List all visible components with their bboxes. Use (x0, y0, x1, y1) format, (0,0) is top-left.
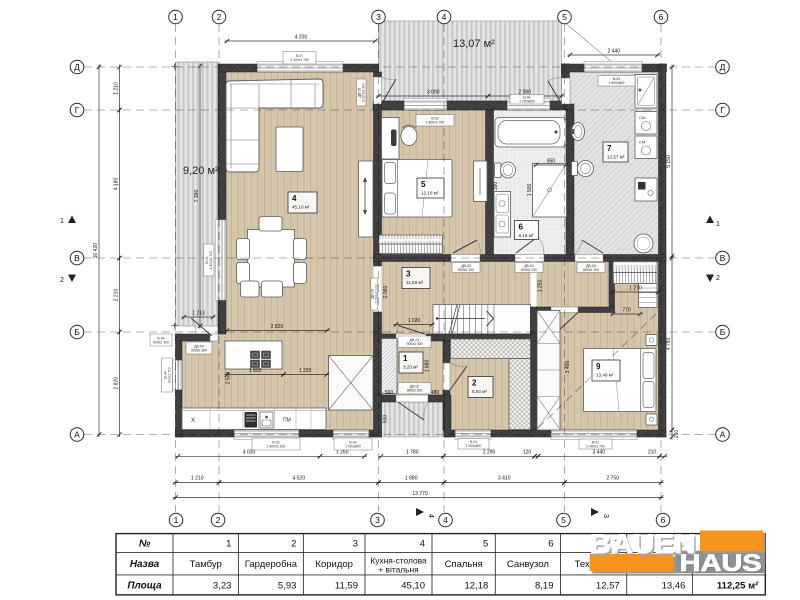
svg-text:Назва: Назва (130, 559, 160, 570)
svg-text:1 000х800: 1 000х800 (345, 444, 361, 448)
svg-text:1 780: 1 780 (406, 450, 419, 456)
svg-text:210: 210 (674, 430, 680, 439)
svg-text:2: 2 (716, 275, 720, 282)
svg-text:1 210: 1 210 (191, 476, 204, 482)
svg-text:5: 5 (421, 180, 426, 189)
svg-text:HAUS: HAUS (680, 550, 762, 577)
svg-text:390: 390 (493, 182, 499, 191)
svg-text:3: 3 (375, 515, 380, 525)
svg-text:2: 2 (60, 277, 64, 284)
svg-text:2: 2 (291, 539, 296, 550)
svg-text:45,10 м²: 45,10 м² (292, 205, 310, 210)
svg-text:1 000х800: 1 000х800 (466, 444, 482, 448)
svg-text:5: 5 (561, 515, 566, 525)
svg-text:4 030: 4 030 (243, 450, 256, 456)
svg-text:6: 6 (661, 515, 666, 525)
svg-text:Б: Б (720, 327, 726, 337)
svg-text:А: А (720, 430, 726, 440)
svg-text:1 250: 1 250 (538, 280, 544, 293)
svg-text:4 790: 4 790 (666, 338, 672, 351)
svg-text:4: 4 (427, 514, 434, 518)
svg-text:3 400: 3 400 (565, 361, 571, 374)
svg-text:7 390: 7 390 (194, 190, 200, 203)
svg-text:3,23 м²: 3,23 м² (403, 365, 418, 370)
svg-text:А: А (74, 430, 80, 440)
svg-text:3 410: 3 410 (498, 476, 511, 482)
svg-text:13,07 м²: 13,07 м² (453, 38, 495, 50)
svg-text:2: 2 (216, 515, 221, 525)
svg-text:11,59 м²: 11,59 м² (406, 280, 424, 285)
svg-text:4: 4 (420, 539, 425, 550)
svg-text:1 270: 1 270 (629, 286, 642, 292)
svg-text:1: 1 (173, 12, 178, 22)
svg-text:1: 1 (60, 218, 64, 225)
svg-text:1 600: 1 600 (249, 368, 262, 374)
svg-text:Спальня: Спальня (445, 559, 483, 570)
svg-text:СШ: СШ (639, 115, 646, 120)
svg-text:6: 6 (519, 223, 524, 232)
svg-text:Гардеробна: Гардеробна (245, 559, 298, 570)
svg-text:Тамбур: Тамбур (190, 559, 222, 570)
svg-text:850: 850 (547, 159, 556, 165)
svg-text:Санвузол: Санвузол (507, 559, 549, 570)
svg-text:2 820: 2 820 (271, 324, 284, 330)
svg-text:112,25 м²: 112,25 м² (717, 580, 758, 591)
svg-text:2 000х2 100: 2 000х2 100 (374, 285, 378, 304)
svg-text:13,46 м²: 13,46 м² (596, 373, 614, 378)
svg-text:2 500: 2 500 (226, 372, 232, 385)
svg-text:600х1 700: 600х1 700 (167, 367, 171, 383)
svg-text:9: 9 (596, 362, 601, 371)
svg-text:8,19: 8,19 (535, 580, 554, 591)
svg-text:1 600х600: 1 600х600 (609, 81, 625, 85)
svg-text:480: 480 (431, 390, 440, 396)
svg-text:45,10: 45,10 (401, 580, 425, 591)
svg-text:12,57 м²: 12,57 м² (607, 155, 625, 160)
svg-text:3 440: 3 440 (592, 450, 605, 456)
svg-text:СМ: СМ (639, 140, 645, 145)
svg-text:1 800х1 200: 1 800х1 200 (267, 444, 286, 448)
svg-text:2: 2 (217, 12, 222, 22)
svg-text:1: 1 (403, 354, 408, 363)
svg-text:910: 910 (383, 415, 389, 424)
svg-text:Б: Б (74, 327, 80, 337)
svg-text:Коридор: Коридор (315, 559, 353, 570)
svg-text:2 820: 2 820 (113, 377, 119, 390)
svg-text:9,20 м²: 9,20 м² (183, 165, 219, 177)
svg-text:Х: Х (191, 418, 195, 424)
svg-text:5 150: 5 150 (666, 155, 672, 168)
svg-text:5,93 м²: 5,93 м² (472, 389, 487, 394)
svg-text:4 180: 4 180 (113, 178, 119, 191)
svg-text:4: 4 (292, 194, 297, 203)
svg-text:2 400х1 700: 2 400х1 700 (586, 444, 605, 448)
svg-text:3: 3 (406, 270, 411, 279)
svg-text:В: В (720, 253, 726, 263)
svg-text:4: 4 (442, 12, 447, 22)
svg-text:1: 1 (174, 515, 179, 525)
svg-text:6: 6 (548, 539, 553, 550)
svg-text:13,46: 13,46 (662, 580, 686, 591)
svg-text:120: 120 (523, 450, 532, 456)
svg-text:1: 1 (716, 221, 720, 228)
svg-text:4: 4 (443, 515, 448, 525)
svg-text:1 260: 1 260 (336, 450, 349, 456)
svg-text:2 440: 2 440 (607, 48, 620, 54)
svg-text:3: 3 (602, 514, 609, 518)
svg-text:Д: Д (720, 62, 726, 72)
svg-text:800х2 100: 800х2 100 (583, 268, 599, 272)
svg-text:1 200х600: 1 200х600 (519, 100, 535, 104)
svg-text:1 213: 1 213 (192, 311, 205, 317)
svg-text:3: 3 (376, 12, 381, 22)
svg-text:2 400х1 700: 2 400х1 700 (290, 58, 309, 62)
svg-text:13 770: 13 770 (412, 491, 428, 497)
svg-text:210: 210 (648, 450, 657, 456)
svg-text:+ вітальня: + вітальня (378, 565, 418, 575)
svg-text:1 020: 1 020 (408, 318, 421, 324)
svg-text:4 520: 4 520 (292, 476, 305, 482)
svg-text:3,23: 3,23 (213, 580, 232, 591)
svg-text:4 200: 4 200 (295, 35, 308, 41)
svg-text:10 420: 10 420 (93, 243, 99, 259)
svg-text:7: 7 (607, 144, 612, 153)
svg-text:1 220: 1 220 (299, 368, 312, 374)
svg-text:3: 3 (353, 539, 358, 550)
svg-text:900х2 300: 900х2 300 (153, 340, 169, 344)
svg-text:5: 5 (483, 539, 488, 550)
svg-text:900х2 300: 900х2 300 (407, 389, 423, 393)
svg-text:В: В (74, 253, 80, 263)
svg-text:8,19 м²: 8,19 м² (519, 233, 534, 238)
svg-text:Площа: Площа (127, 580, 162, 591)
svg-text:12,57: 12,57 (596, 580, 620, 591)
svg-text:2 060: 2 060 (383, 286, 389, 299)
svg-text:5: 5 (562, 12, 567, 22)
svg-text:900х2 300: 900х2 300 (191, 348, 207, 352)
svg-text:1 500: 1 500 (527, 184, 533, 197)
svg-text:Г: Г (75, 105, 80, 115)
svg-text:900х2 300: 900х2 300 (407, 342, 423, 346)
svg-text:2 750: 2 750 (606, 476, 619, 482)
svg-text:560: 560 (385, 390, 394, 396)
svg-text:2: 2 (472, 379, 477, 388)
svg-text:3 090: 3 090 (427, 90, 440, 96)
svg-text:12,18 м²: 12,18 м² (421, 191, 439, 196)
svg-text:770: 770 (622, 308, 631, 314)
svg-text:1 800х1 700: 1 800х1 700 (426, 121, 445, 125)
svg-text:1 210: 1 210 (113, 82, 119, 95)
svg-text:2 400х1 700: 2 400х1 700 (209, 251, 213, 270)
svg-text:№: № (139, 539, 151, 550)
svg-text:2 000х2 300: 2 000х2 300 (362, 83, 366, 102)
svg-text:800х2 100: 800х2 100 (458, 268, 474, 272)
svg-text:1 680: 1 680 (425, 360, 431, 373)
svg-text:1: 1 (226, 539, 231, 550)
svg-text:800х2 100: 800х2 100 (521, 268, 537, 272)
svg-text:1 880: 1 880 (405, 476, 418, 482)
svg-text:ПМ: ПМ (283, 418, 291, 424)
svg-text:Г: Г (720, 105, 725, 115)
svg-text:12,18: 12,18 (465, 580, 489, 591)
svg-text:11,59: 11,59 (335, 580, 358, 591)
svg-text:6: 6 (659, 12, 664, 22)
svg-text:2 210: 2 210 (113, 289, 119, 302)
svg-text:Д: Д (74, 62, 80, 72)
svg-text:2 290: 2 290 (483, 450, 496, 456)
svg-text:5,93: 5,93 (278, 580, 297, 591)
